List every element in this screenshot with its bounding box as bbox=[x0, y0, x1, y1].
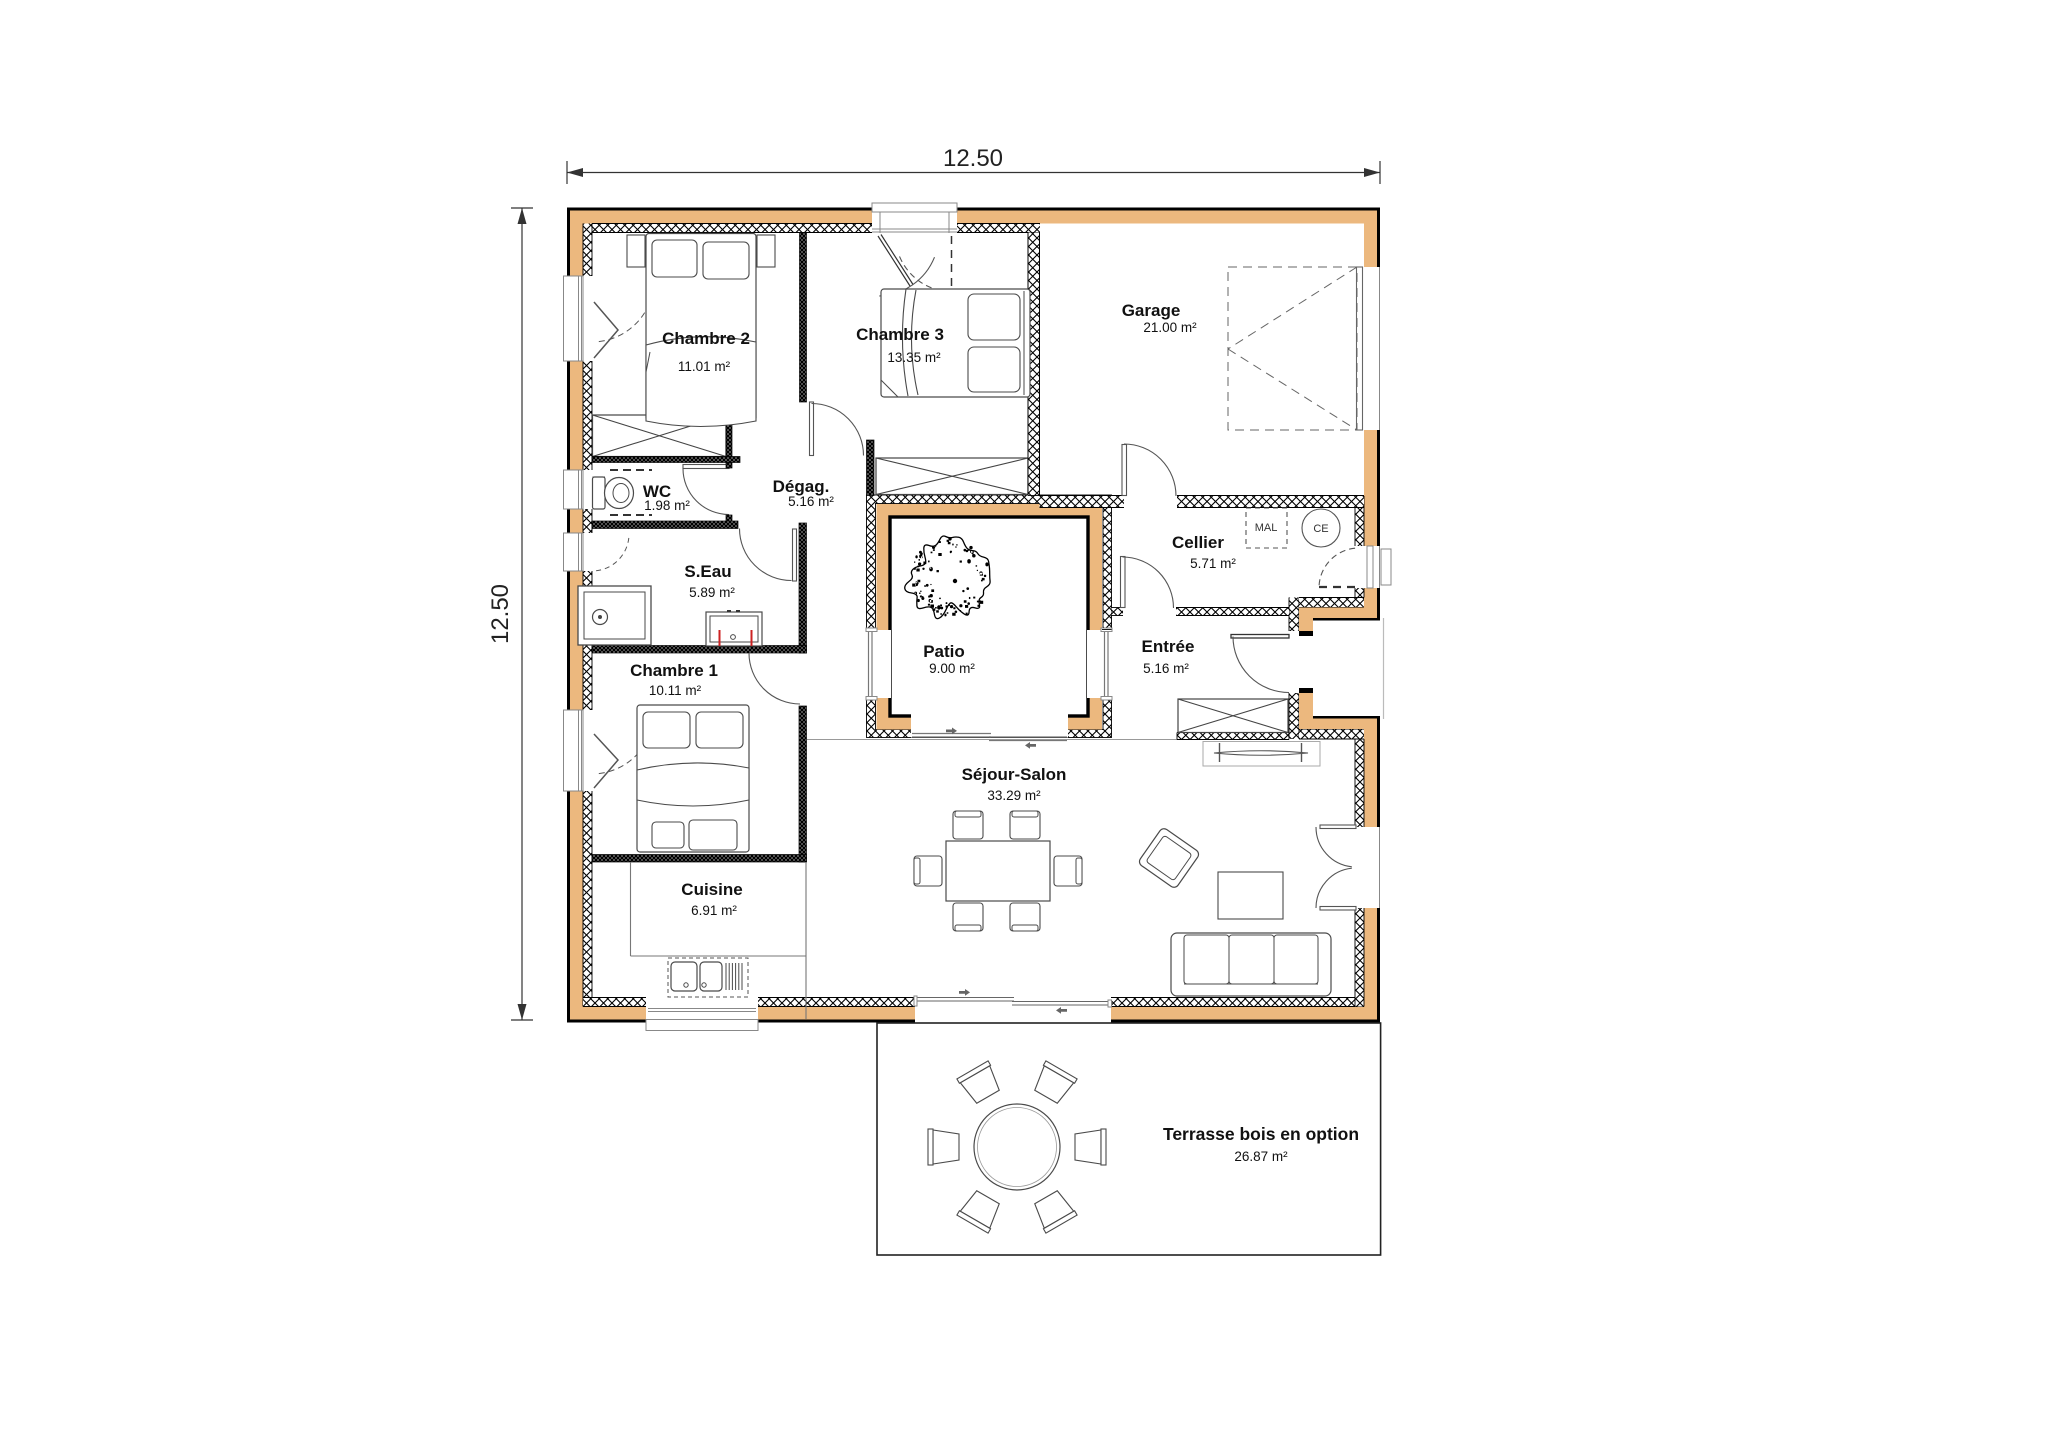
svg-text:6.91 m²: 6.91 m² bbox=[691, 903, 737, 918]
svg-text:Entrée: Entrée bbox=[1142, 637, 1195, 656]
svg-text:Séjour-Salon: Séjour-Salon bbox=[962, 765, 1067, 784]
svg-text:12.50: 12.50 bbox=[943, 145, 1003, 172]
svg-text:11.01 m²: 11.01 m² bbox=[678, 359, 731, 374]
svg-text:Terrasse bois en option: Terrasse bois en option bbox=[1163, 1124, 1359, 1144]
svg-text:S.Eau: S.Eau bbox=[684, 562, 731, 581]
svg-text:33.29 m²: 33.29 m² bbox=[987, 788, 1041, 803]
svg-text:5.89 m²: 5.89 m² bbox=[689, 585, 735, 600]
svg-text:Cellier: Cellier bbox=[1172, 533, 1224, 552]
svg-text:Chambre 2: Chambre 2 bbox=[662, 329, 750, 348]
svg-text:10.11 m²: 10.11 m² bbox=[649, 683, 702, 698]
svg-text:13.35 m²: 13.35 m² bbox=[887, 350, 941, 365]
svg-text:Cuisine: Cuisine bbox=[681, 880, 742, 899]
svg-text:26.87 m²: 26.87 m² bbox=[1234, 1149, 1288, 1164]
svg-text:21.00 m²: 21.00 m² bbox=[1143, 320, 1197, 335]
svg-text:5.16 m²: 5.16 m² bbox=[1143, 661, 1189, 676]
svg-text:Patio: Patio bbox=[923, 642, 965, 661]
svg-text:9.00 m²: 9.00 m² bbox=[929, 661, 975, 676]
svg-text:5.71 m²: 5.71 m² bbox=[1190, 556, 1236, 571]
svg-text:5.16 m²: 5.16 m² bbox=[788, 494, 834, 509]
svg-text:CE: CE bbox=[1313, 523, 1328, 535]
svg-text:Chambre 1: Chambre 1 bbox=[630, 661, 718, 680]
svg-text:Garage: Garage bbox=[1122, 301, 1181, 320]
svg-text:Chambre 3: Chambre 3 bbox=[856, 325, 944, 344]
svg-text:12.50: 12.50 bbox=[487, 584, 514, 644]
svg-text:MAL: MAL bbox=[1255, 522, 1278, 534]
svg-text:1.98 m²: 1.98 m² bbox=[644, 498, 690, 513]
